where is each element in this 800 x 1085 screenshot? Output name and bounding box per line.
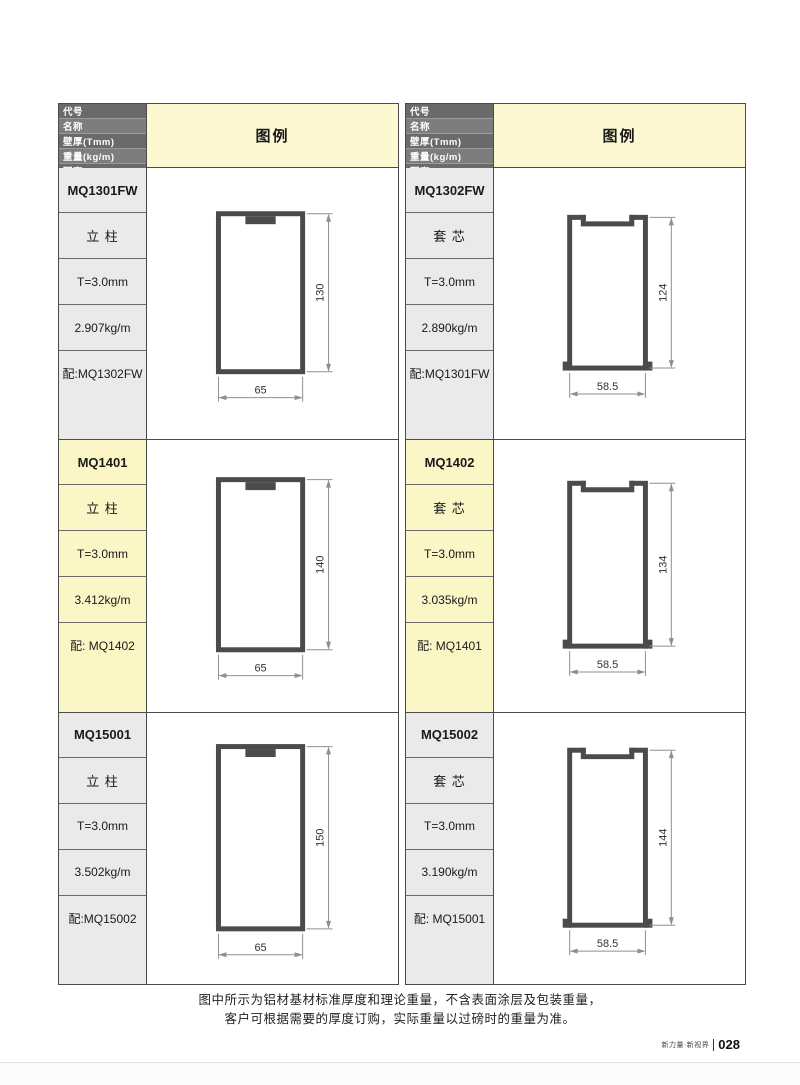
profile-weight: 3.502kg/m bbox=[59, 850, 146, 896]
svg-text:65: 65 bbox=[254, 941, 266, 953]
header-row-weight: 重量(kg/m) bbox=[406, 149, 493, 164]
svg-text:65: 65 bbox=[254, 385, 266, 397]
profile-cross-section: 15065 bbox=[147, 713, 398, 984]
profile-name: 立 柱 bbox=[59, 213, 146, 259]
profile-code: MQ15002 bbox=[406, 713, 493, 758]
profile-drawing: 14065 bbox=[147, 440, 398, 711]
header-row-weight: 重量(kg/m) bbox=[59, 149, 146, 164]
profile-match: 配: MQ15001 bbox=[406, 896, 493, 984]
profile-drawing: 13065 bbox=[147, 168, 398, 439]
table-header: 代号 名称 壁厚(Tmm) 重量(kg/m) 配套 图例 bbox=[406, 104, 745, 168]
profile-weight: 3.412kg/m bbox=[59, 577, 146, 623]
profile-block-mq1302fw: MQ1302FW 套 芯 T=3.0mm 2.890kg/m 配:MQ1301F… bbox=[406, 168, 745, 440]
profile-cross-section: 13065 bbox=[147, 168, 398, 439]
profile-match: 配: MQ1402 bbox=[59, 623, 146, 711]
profile-name: 立 柱 bbox=[59, 485, 146, 531]
profile-code: MQ1301FW bbox=[59, 168, 146, 213]
profile-match: 配:MQ15002 bbox=[59, 896, 146, 984]
profile-cross-section: 14458.5 bbox=[494, 713, 745, 984]
profile-name: 套 芯 bbox=[406, 485, 493, 531]
profile-code: MQ1302FW bbox=[406, 168, 493, 213]
svg-text:140: 140 bbox=[315, 556, 327, 574]
profile-drawing: 14458.5 bbox=[494, 713, 745, 984]
profile-cross-section: 13458.5 bbox=[494, 440, 745, 711]
profile-block-mq15001: MQ15001 立 柱 T=3.0mm 3.502kg/m 配:MQ15002 … bbox=[59, 713, 398, 984]
spec-table-left: 代号 名称 壁厚(Tmm) 重量(kg/m) 配套 图例 MQ1301FW 立 … bbox=[58, 103, 399, 985]
profile-labels: MQ1402 套 芯 T=3.0mm 3.035kg/m 配: MQ1401 bbox=[406, 440, 494, 711]
legend-header-cell: 图例 bbox=[494, 104, 745, 167]
bottom-strip bbox=[0, 1062, 800, 1085]
header-row-name: 名称 bbox=[59, 119, 146, 134]
profile-block-mq1402: MQ1402 套 芯 T=3.0mm 3.035kg/m 配: MQ1401 1… bbox=[406, 440, 745, 712]
table-header: 代号 名称 壁厚(Tmm) 重量(kg/m) 配套 图例 bbox=[59, 104, 398, 168]
profile-name: 套 芯 bbox=[406, 213, 493, 259]
svg-text:58.5: 58.5 bbox=[597, 938, 618, 950]
svg-text:124: 124 bbox=[657, 284, 669, 302]
profile-match: 配:MQ1302FW bbox=[59, 351, 146, 439]
header-row-thickness: 壁厚(Tmm) bbox=[59, 134, 146, 149]
header-row-name: 名称 bbox=[406, 119, 493, 134]
profile-code: MQ1402 bbox=[406, 440, 493, 485]
header-field-labels: 代号 名称 壁厚(Tmm) 重量(kg/m) 配套 bbox=[406, 104, 494, 167]
profile-labels: MQ15001 立 柱 T=3.0mm 3.502kg/m 配:MQ15002 bbox=[59, 713, 147, 984]
header-row-thickness: 壁厚(Tmm) bbox=[406, 134, 493, 149]
brand-tagline: 新力量·新视界 bbox=[661, 1040, 709, 1050]
profile-block-mq1401: MQ1401 立 柱 T=3.0mm 3.412kg/m 配: MQ1402 1… bbox=[59, 440, 398, 712]
page-footer: 新力量·新视界 028 bbox=[661, 1037, 740, 1052]
svg-text:134: 134 bbox=[657, 556, 669, 574]
profile-thickness: T=3.0mm bbox=[59, 531, 146, 577]
profile-weight: 3.190kg/m bbox=[406, 850, 493, 896]
profile-weight: 2.890kg/m bbox=[406, 305, 493, 351]
spec-table-right: 代号 名称 壁厚(Tmm) 重量(kg/m) 配套 图例 MQ1302FW 套 … bbox=[405, 103, 746, 985]
profile-code: MQ1401 bbox=[59, 440, 146, 485]
header-row-code: 代号 bbox=[406, 104, 493, 119]
profile-thickness: T=3.0mm bbox=[406, 804, 493, 850]
profile-name: 立 柱 bbox=[59, 758, 146, 804]
profile-name: 套 芯 bbox=[406, 758, 493, 804]
svg-text:65: 65 bbox=[254, 663, 266, 675]
footer-note-line1: 图中所示为铝材基材标准厚度和理论重量，不含表面涂层及包装重量， bbox=[0, 991, 800, 1010]
profile-drawing: 12458.5 bbox=[494, 168, 745, 439]
svg-text:150: 150 bbox=[315, 828, 327, 846]
footer-note-line2: 客户可根据需要的厚度订购，实际重量以过磅时的重量为准。 bbox=[0, 1010, 800, 1029]
footer-divider bbox=[713, 1039, 714, 1051]
profile-labels: MQ1302FW 套 芯 T=3.0mm 2.890kg/m 配:MQ1301F… bbox=[406, 168, 494, 439]
profile-thickness: T=3.0mm bbox=[59, 259, 146, 305]
profile-drawing: 13458.5 bbox=[494, 440, 745, 711]
header-field-labels: 代号 名称 壁厚(Tmm) 重量(kg/m) 配套 bbox=[59, 104, 147, 167]
page-number: 028 bbox=[718, 1037, 740, 1052]
profile-weight: 2.907kg/m bbox=[59, 305, 146, 351]
profile-thickness: T=3.0mm bbox=[406, 259, 493, 305]
profile-code: MQ15001 bbox=[59, 713, 146, 758]
profile-thickness: T=3.0mm bbox=[406, 531, 493, 577]
profile-match: 配: MQ1401 bbox=[406, 623, 493, 711]
profile-thickness: T=3.0mm bbox=[59, 804, 146, 850]
header-row-code: 代号 bbox=[59, 104, 146, 119]
profile-drawing: 15065 bbox=[147, 713, 398, 984]
profile-block-mq15002: MQ15002 套 芯 T=3.0mm 3.190kg/m 配: MQ15001… bbox=[406, 713, 745, 984]
profile-cross-section: 14065 bbox=[147, 440, 398, 711]
footer-note: 图中所示为铝材基材标准厚度和理论重量，不含表面涂层及包装重量， 客户可根据需要的… bbox=[0, 991, 800, 1029]
profile-labels: MQ1301FW 立 柱 T=3.0mm 2.907kg/m 配:MQ1302F… bbox=[59, 168, 147, 439]
svg-text:58.5: 58.5 bbox=[597, 659, 618, 671]
profile-match: 配:MQ1301FW bbox=[406, 351, 493, 439]
catalog-page: 代号 名称 壁厚(Tmm) 重量(kg/m) 配套 图例 MQ1301FW 立 … bbox=[0, 0, 800, 1085]
svg-text:130: 130 bbox=[315, 284, 327, 302]
profile-weight: 3.035kg/m bbox=[406, 577, 493, 623]
profile-labels: MQ15002 套 芯 T=3.0mm 3.190kg/m 配: MQ15001 bbox=[406, 713, 494, 984]
svg-text:58.5: 58.5 bbox=[597, 381, 618, 393]
profile-block-mq1301fw: MQ1301FW 立 柱 T=3.0mm 2.907kg/m 配:MQ1302F… bbox=[59, 168, 398, 440]
profile-cross-section: 12458.5 bbox=[494, 168, 745, 439]
profile-labels: MQ1401 立 柱 T=3.0mm 3.412kg/m 配: MQ1402 bbox=[59, 440, 147, 711]
legend-header-cell: 图例 bbox=[147, 104, 398, 167]
svg-text:144: 144 bbox=[657, 828, 669, 846]
